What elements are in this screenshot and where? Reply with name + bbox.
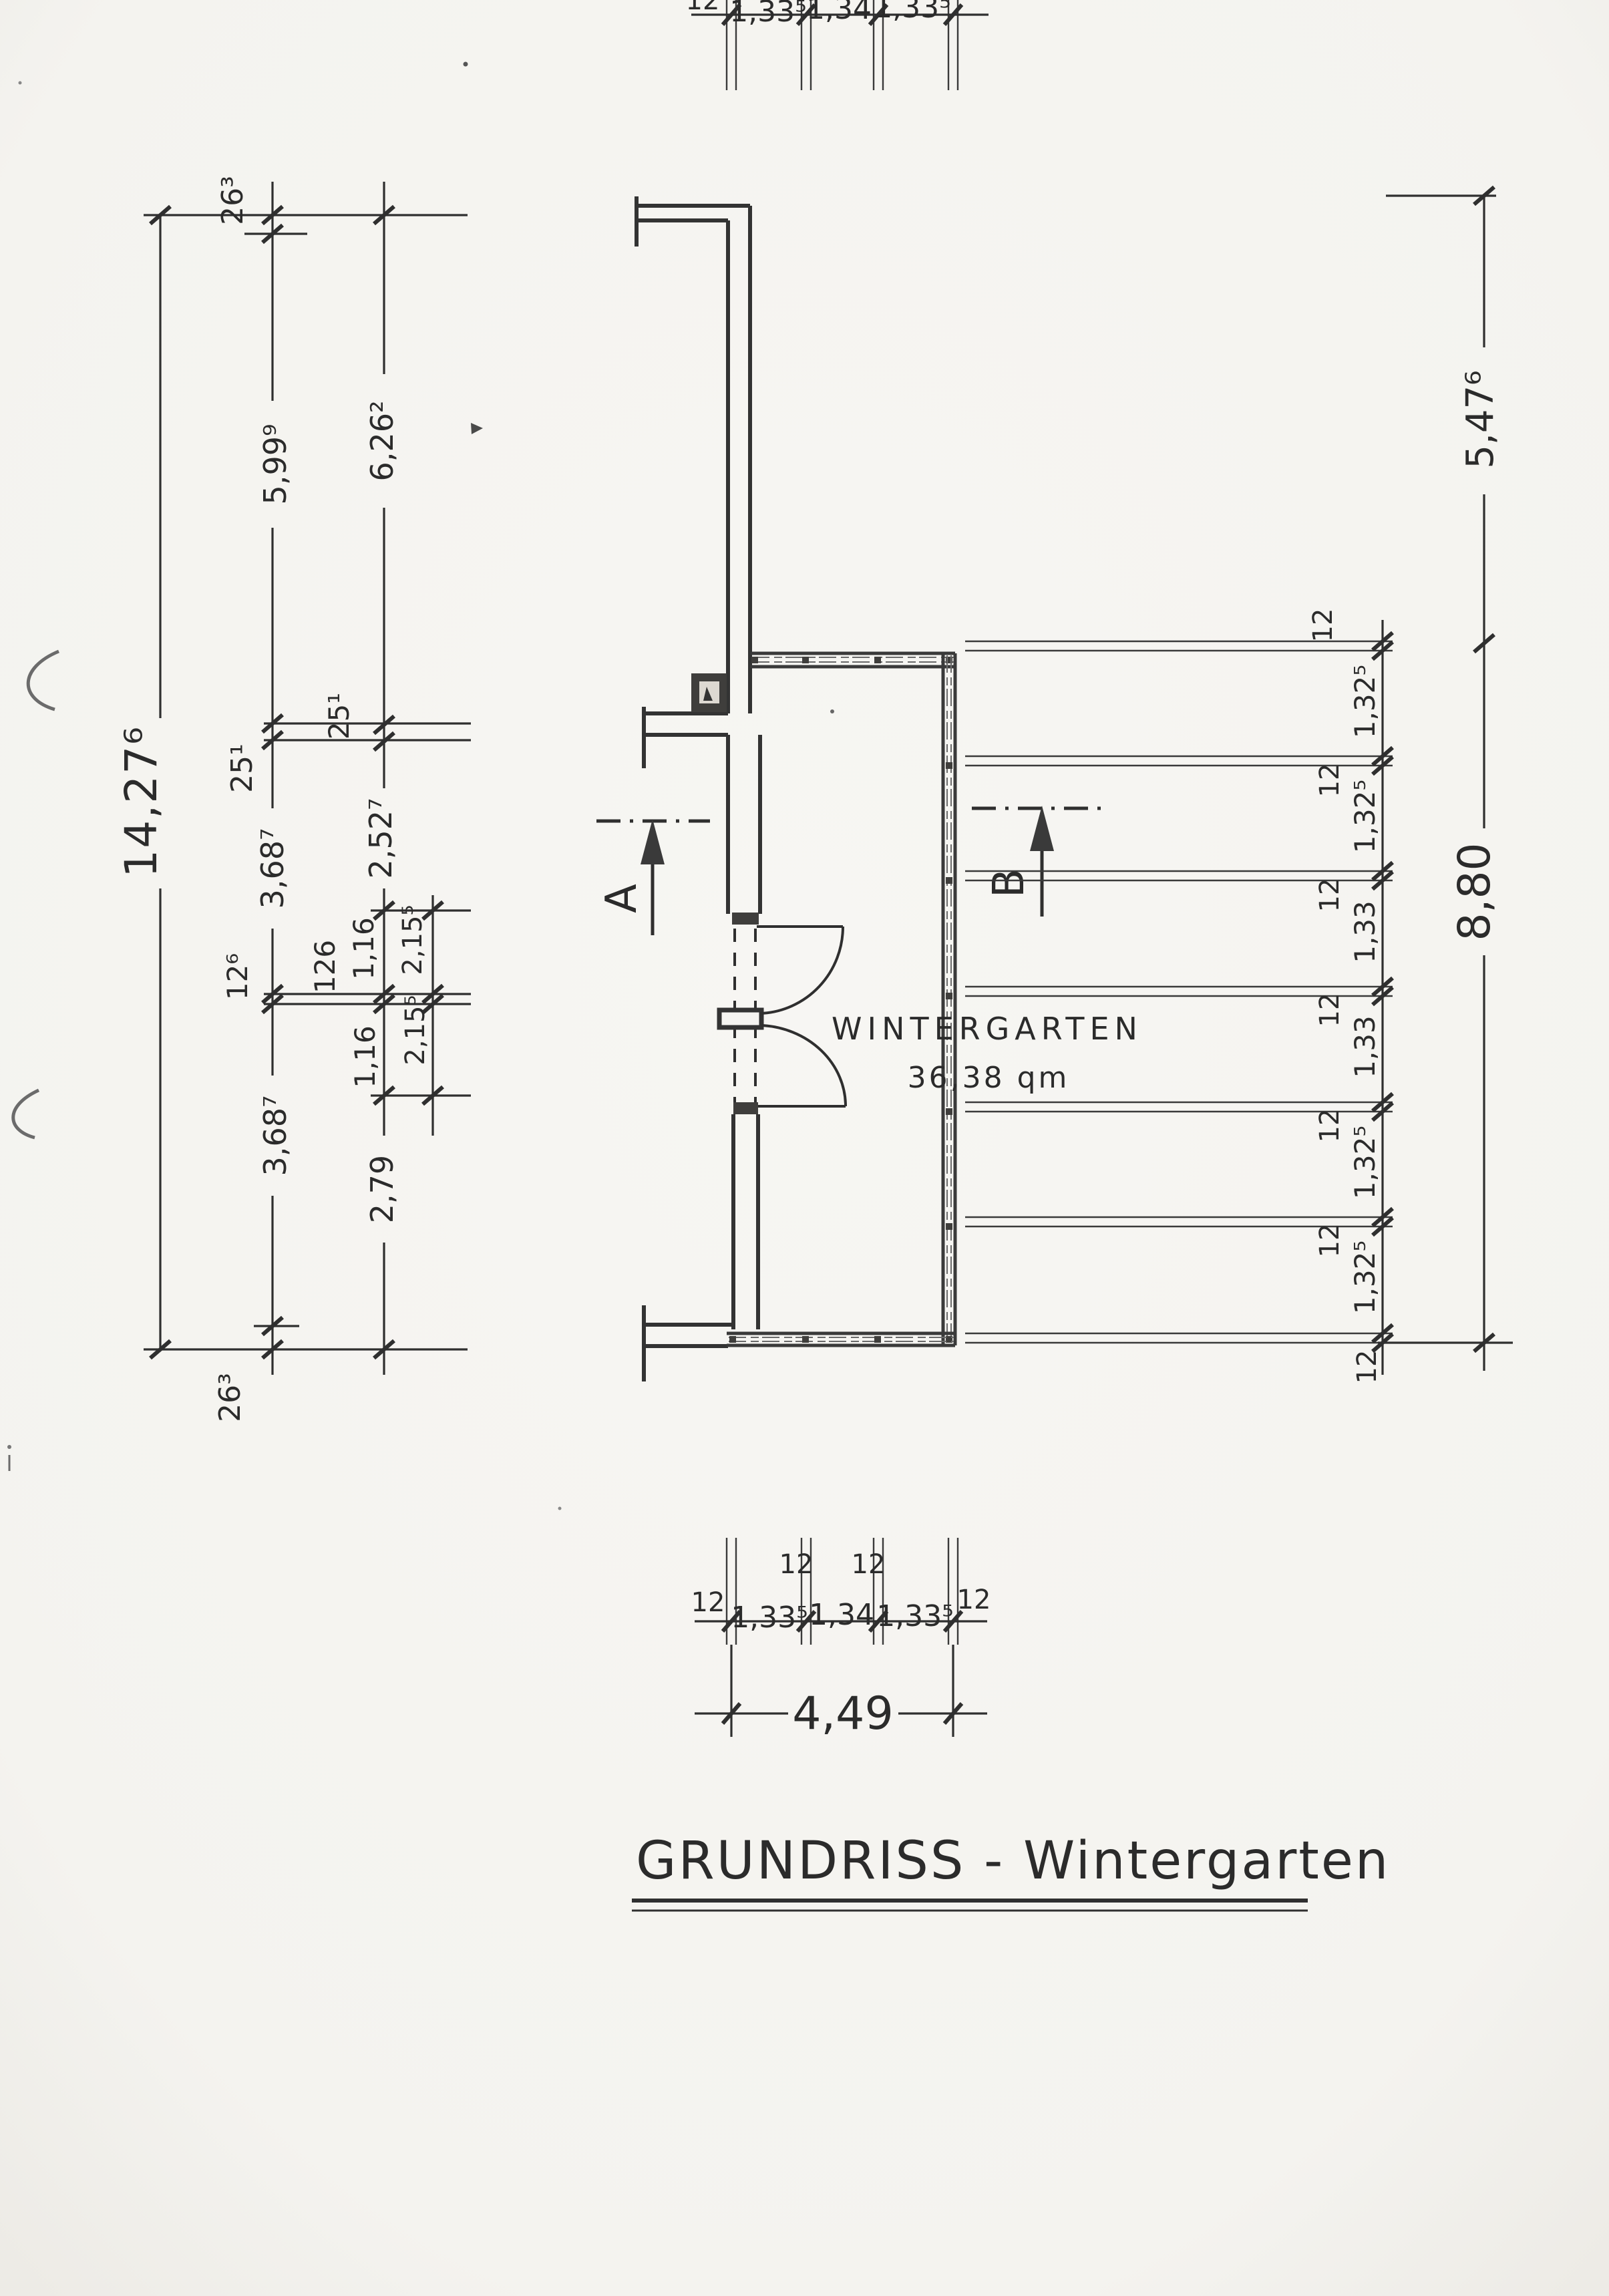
dim-label: 2,52⁷: [363, 798, 399, 879]
dim-label: 25¹: [225, 744, 259, 793]
dim-label: 1,16: [347, 917, 380, 980]
dim-label: 12: [691, 1587, 725, 1618]
right-band-joint: [946, 1223, 952, 1230]
right-band-joint: [946, 993, 952, 999]
dim-label: 1,32⁵: [1349, 1241, 1381, 1314]
floor-plan-drawing: WINTERGARTEN 36,38 qm A B 14,27⁶ 26³: [0, 0, 1609, 2296]
dim-label: 26³: [213, 1373, 247, 1422]
dim-label: 3,68⁷: [254, 828, 291, 909]
dim-label-bottom-total: 4,49: [792, 1687, 893, 1740]
section-label-a: A: [597, 884, 647, 913]
dim-label: 12: [852, 1549, 886, 1580]
dim-label: 12: [1314, 993, 1345, 1027]
dim-label: 12⁶: [221, 953, 254, 1000]
room-name-label: WINTERGARTEN: [832, 1011, 1143, 1047]
dim-label: 1,32⁵: [1349, 665, 1381, 738]
dim-label: 126: [309, 940, 341, 993]
top-band-joint: [874, 657, 881, 663]
section-label-b: B: [985, 868, 1034, 898]
dim-label: 12: [779, 1549, 814, 1580]
bottom-band-joint: [802, 1336, 809, 1343]
speck: [830, 709, 834, 713]
top-band-joint: [751, 657, 758, 663]
bottom-band-joint: [874, 1336, 881, 1343]
speck: [558, 1507, 562, 1510]
dim-label: 1,33⁵: [729, 0, 807, 29]
dim-label: 2,15⁵: [397, 905, 428, 975]
dim-label-overall-height: 14,27⁶: [116, 725, 167, 877]
dim-label: 12: [1314, 878, 1345, 913]
dim-label-glass-total: 8,80: [1449, 843, 1500, 941]
speck: [464, 62, 468, 67]
speck: [19, 81, 22, 85]
dim-label: 26³: [216, 176, 250, 225]
dim-label: 1,33: [1349, 1015, 1381, 1078]
dim-label: 12: [1314, 764, 1345, 798]
corner-post-section: [691, 673, 727, 712]
dim-label: 1,33: [1349, 900, 1381, 963]
right-band-joint: [946, 877, 952, 884]
dim-label: 1,16: [349, 1025, 381, 1088]
dim-label: 12: [1314, 1109, 1345, 1143]
dim-label: 3,68⁷: [257, 1096, 293, 1176]
dim-label: 1,32⁵: [1349, 780, 1381, 853]
dim-label: 1,34: [809, 1598, 874, 1632]
door-jamb-lower: [733, 1102, 758, 1114]
dim-label: 2,79: [364, 1155, 400, 1223]
dim-label: 12: [1352, 1350, 1383, 1384]
door-meeting-stile: [719, 1010, 761, 1027]
dim-label: 12: [1308, 609, 1338, 643]
dim-label: 1,33⁵: [874, 0, 951, 25]
bottom-band-joint: [729, 1336, 736, 1343]
dim-label: 5,99⁹: [257, 424, 293, 505]
dim-label: 1,32⁵: [1349, 1126, 1381, 1199]
dim-label: 12: [686, 0, 720, 16]
right-band-joint: [946, 762, 952, 769]
dim-label: 6,26²: [364, 401, 400, 482]
dim-label: 1,33⁵: [876, 1599, 954, 1633]
dim-label: 12: [1314, 1224, 1345, 1258]
dim-label-side-total: 5,47⁶: [1459, 370, 1502, 468]
room-area-label: 36,38 qm: [908, 1061, 1070, 1095]
speck: [7, 1445, 11, 1449]
top-band-joint: [802, 657, 809, 663]
scanned-floor-plan-page: WINTERGARTEN 36,38 qm A B 14,27⁶ 26³: [0, 0, 1609, 2296]
drawing-title: GRUNDRISS - Wintergarten: [632, 1831, 1390, 1911]
dim-label: 25¹: [323, 693, 355, 740]
door-jamb-upper: [732, 913, 759, 925]
dim-label: 2,15⁵: [400, 995, 431, 1065]
title-text: GRUNDRISS - Wintergarten: [636, 1831, 1390, 1891]
dim-label: 1,34: [806, 0, 872, 26]
dim-label: 1,33⁵: [731, 1601, 808, 1635]
right-band-joint: [946, 1108, 952, 1115]
dim-label: 12: [957, 1585, 991, 1615]
